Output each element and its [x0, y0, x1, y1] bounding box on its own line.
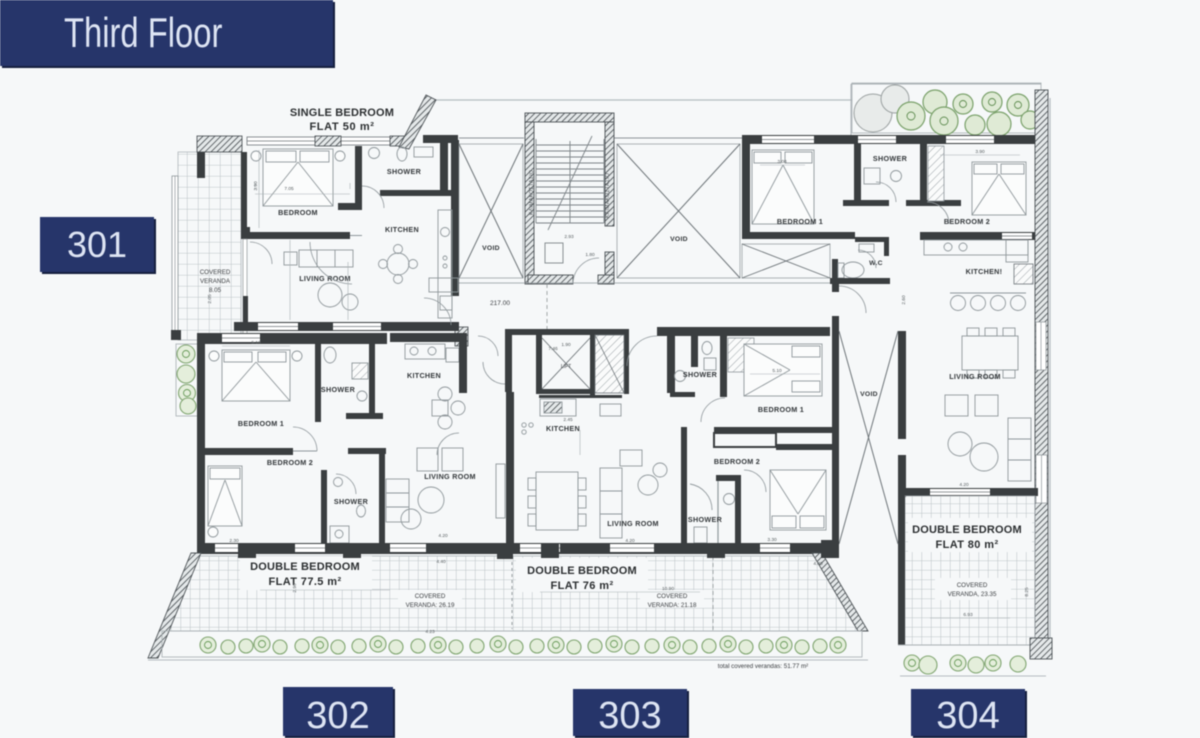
svg-text:LIVING ROOM: LIVING ROOM: [299, 274, 351, 283]
svg-text:217.00: 217.00: [490, 300, 510, 307]
svg-text:FLAT 76 m²: FLAT 76 m²: [550, 580, 613, 592]
svg-text:LIVING ROOM: LIVING ROOM: [949, 372, 1001, 381]
svg-text:DOUBLE BEDROOM: DOUBLE BEDROOM: [912, 524, 1022, 536]
svg-text:VOID: VOID: [482, 245, 500, 252]
svg-text:2.45: 2.45: [563, 417, 573, 423]
svg-text:VOID: VOID: [670, 236, 688, 243]
svg-text:4.20: 4.20: [438, 533, 448, 539]
svg-text:2.93: 2.93: [564, 234, 574, 240]
svg-text:VERANDA: 21.18: VERANDA: 21.18: [648, 602, 697, 609]
svg-text:KITCHEN: KITCHEN: [546, 424, 580, 433]
svg-text:1.90: 1.90: [561, 342, 571, 348]
svg-text:BEDROOM 1: BEDROOM 1: [758, 405, 804, 414]
svg-text:LIVING ROOM: LIVING ROOM: [607, 519, 659, 528]
svg-text:SHOWER: SHOWER: [688, 515, 723, 524]
svg-text:COVERED: COVERED: [200, 269, 231, 276]
svg-text:VERANDA, 23.35: VERANDA, 23.35: [948, 591, 997, 598]
svg-text:VERANDA: 26.19: VERANDA: 26.19: [406, 602, 455, 609]
svg-text:BEDROOM 2: BEDROOM 2: [944, 217, 990, 226]
svg-text:8.05: 8.05: [209, 287, 222, 294]
svg-text:2.90: 2.90: [292, 583, 298, 593]
svg-text:SINGLE BEDROOM: SINGLE BEDROOM: [290, 107, 394, 119]
svg-text:total covered verandas: 51.77: total covered verandas: 51.77 m²: [718, 663, 808, 670]
svg-text:2.60: 2.60: [901, 295, 907, 305]
svg-text:DOUBLE BEDROOM: DOUBLE BEDROOM: [527, 565, 637, 577]
svg-text:SHOWER: SHOWER: [334, 497, 369, 506]
svg-text:BEDROOM 2: BEDROOM 2: [267, 458, 313, 467]
svg-text:FLAT 80 m²: FLAT 80 m²: [935, 539, 998, 551]
svg-text:BEDROOM: BEDROOM: [278, 208, 318, 217]
svg-text:SHOWER: SHOWER: [387, 167, 422, 176]
svg-text:FLAT 50 m²: FLAT 50 m²: [309, 121, 374, 133]
svg-text:1.80: 1.80: [585, 252, 595, 258]
svg-text:4.40: 4.40: [436, 559, 446, 565]
svg-text:3.90: 3.90: [975, 149, 985, 155]
svg-text:COVERED: COVERED: [415, 593, 446, 600]
svg-text:3.08: 3.08: [777, 159, 787, 165]
svg-text:BEDROOM 1: BEDROOM 1: [238, 419, 284, 428]
svg-text:LIFT: LIFT: [561, 364, 571, 370]
svg-text:4.20: 4.20: [625, 538, 635, 544]
svg-text:4.40: 4.40: [813, 561, 823, 567]
svg-text:COVERED: COVERED: [957, 582, 988, 589]
svg-text:SHOWER: SHOWER: [873, 154, 908, 163]
svg-text:7.46: 7.46: [548, 346, 558, 352]
svg-text:KITCHEN: KITCHEN: [407, 371, 441, 380]
svg-text:ΚΛΙΜΑΚΟΣΤΑΣΙΟ: ΚΛΙΜΑΚΟΣΤΑΣΙΟ: [605, 173, 611, 218]
svg-text:3.30: 3.30: [767, 537, 777, 543]
svg-text:7.05: 7.05: [284, 186, 294, 192]
svg-text:8.25: 8.25: [1024, 587, 1030, 597]
svg-text:VOID: VOID: [860, 391, 878, 398]
svg-text:COVERED: COVERED: [657, 593, 688, 600]
svg-text:4.20: 4.20: [959, 482, 969, 488]
svg-text:FLAT 77.5 m²: FLAT 77.5 m²: [268, 576, 341, 588]
svg-text:ΚΛΙΜΑΚΟΣΤΑΣΙΟ: ΚΛΙΜΑΚΟΣΤΑΣΙΟ: [529, 170, 535, 215]
svg-text:5.10: 5.10: [772, 368, 782, 374]
svg-text:6.93: 6.93: [963, 612, 973, 618]
svg-text:5.10: 5.10: [251, 340, 261, 346]
svg-text:DOUBLE BEDROOM: DOUBLE BEDROOM: [250, 561, 360, 573]
svg-text:KITCHEN!: KITCHEN!: [966, 267, 1003, 276]
svg-text:2.05: 2.05: [207, 294, 213, 304]
svg-text:BEDROOM 1: BEDROOM 1: [777, 217, 823, 226]
svg-text:BEDROOM 2: BEDROOM 2: [714, 457, 760, 466]
svg-text:4.23: 4.23: [425, 629, 435, 635]
svg-text:SHOWER: SHOWER: [321, 385, 356, 394]
svg-text:2.30: 2.30: [229, 538, 239, 544]
svg-text:LIVING ROOM: LIVING ROOM: [424, 472, 476, 481]
svg-text:10.90: 10.90: [662, 586, 674, 592]
svg-text:SHOWER: SHOWER: [683, 370, 718, 379]
svg-text:VERANDA: VERANDA: [200, 278, 231, 285]
svg-text:3.90: 3.90: [253, 181, 259, 191]
svg-text:KITCHEN: KITCHEN: [385, 225, 419, 234]
